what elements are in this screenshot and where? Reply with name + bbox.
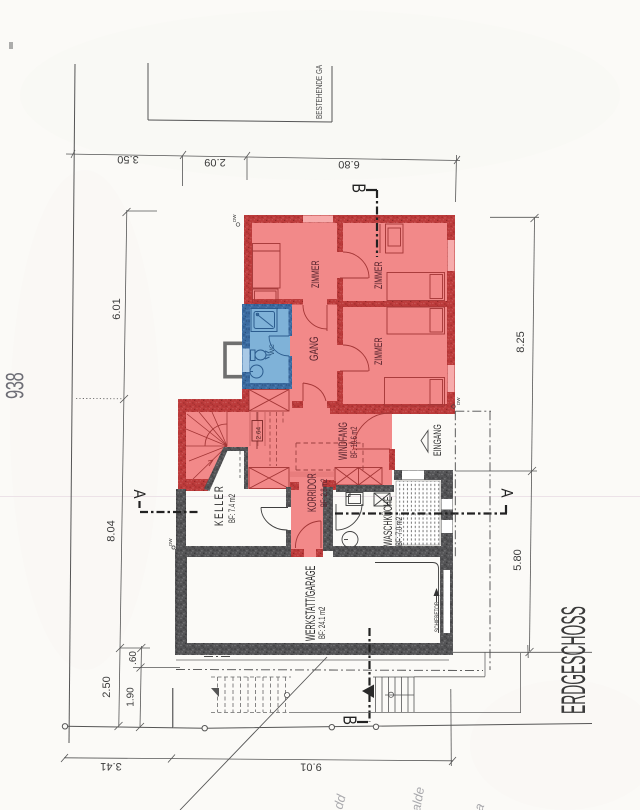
svg-text:KORRIDOR: KORRIDOR (306, 473, 319, 512)
svg-text:ZIMMER: ZIMMER (309, 260, 321, 288)
svg-text:ZIMMER: ZIMMER (372, 337, 384, 365)
svg-text:BF: 24.1 m2: BF: 24.1 m2 (317, 607, 328, 639)
svg-text:EINGANG: EINGANG (431, 424, 443, 456)
svg-text:6.80: 6.80 (338, 158, 359, 170)
svg-text:3.41: 3.41 (100, 760, 121, 772)
svg-text:ZIMMER: ZIMMER (372, 261, 384, 289)
svg-text:2.50: 2.50 (101, 676, 113, 697)
svg-text:BF: 10.6 m2: BF: 10.6 m2 (349, 427, 360, 458)
svg-text:A: A (130, 490, 149, 500)
svg-text:938: 938 (2, 373, 29, 399)
svg-text:2.09: 2.09 (204, 156, 225, 168)
svg-text:DW: DW (168, 538, 173, 546)
svg-text:BESTEHENDE GA: BESTEHENDE GA (314, 64, 324, 119)
svg-text:ERDGESCHOSS: ERDGESCHOSS (554, 606, 593, 714)
svg-text:DW: DW (456, 397, 461, 405)
svg-text:.60: .60 (128, 651, 139, 665)
svg-text:8.04: 8.04 (106, 520, 118, 541)
svg-text:2.64: 2.64 (256, 426, 263, 439)
svg-text:B: B (339, 716, 359, 725)
svg-text:BF: 7.0 m2: BF: 7.0 m2 (394, 517, 405, 546)
svg-text:GANG: GANG (309, 337, 322, 361)
svg-text:5.80: 5.80 (512, 549, 524, 570)
svg-text:1.90: 1.90 (126, 687, 137, 707)
svg-text:B: B (348, 184, 368, 193)
svg-text:SCHIEBETOR: SCHIEBETOR (435, 602, 442, 632)
svg-text:8.25: 8.25 (515, 331, 527, 352)
svg-text:9.01: 9.01 (300, 761, 321, 773)
svg-text:KELLER: KELLER (214, 485, 227, 526)
svg-text:A: A (497, 489, 516, 499)
svg-text:BF: 7.4 m2: BF: 7.4 m2 (227, 494, 238, 523)
svg-text:DW: DW (232, 214, 237, 222)
svg-text:6.01: 6.01 (111, 298, 123, 319)
svg-text:WC: WC (269, 344, 276, 355)
svg-text:BF: 2.8 m2: BF: 2.8 m2 (319, 479, 330, 507)
svg-text:3.50: 3.50 (117, 153, 138, 165)
